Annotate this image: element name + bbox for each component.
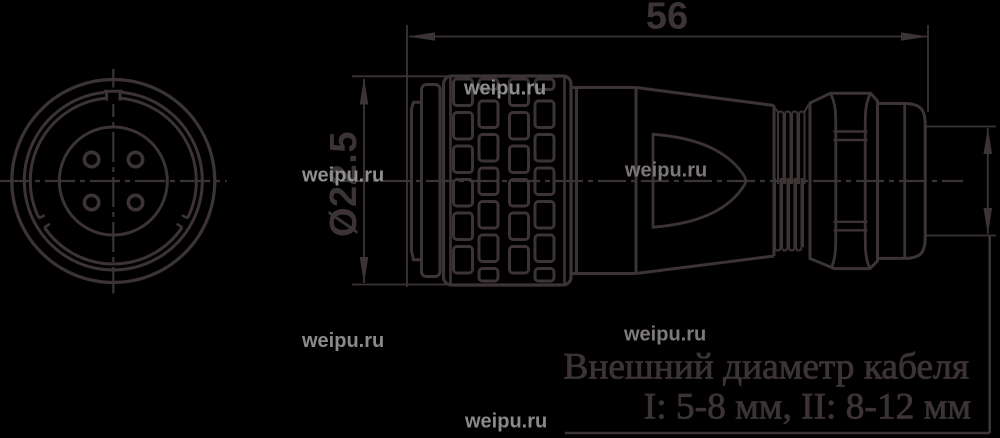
svg-text:I: 5-8 мм, II: 8-12 мм: I: 5-8 мм, II: 8-12 мм xyxy=(644,386,971,427)
svg-text:weipu.ru: weipu.ru xyxy=(301,330,384,352)
svg-text:weipu.ru: weipu.ru xyxy=(463,78,546,100)
svg-text:weipu.ru: weipu.ru xyxy=(624,160,707,182)
svg-text:weipu.ru: weipu.ru xyxy=(623,324,706,346)
svg-text:56: 56 xyxy=(646,0,688,38)
svg-text:weipu.ru: weipu.ru xyxy=(464,411,547,433)
svg-text:weipu.ru: weipu.ru xyxy=(301,165,384,187)
svg-text:Внешний диаметр кабеля: Внешний диаметр кабеля xyxy=(563,346,969,387)
